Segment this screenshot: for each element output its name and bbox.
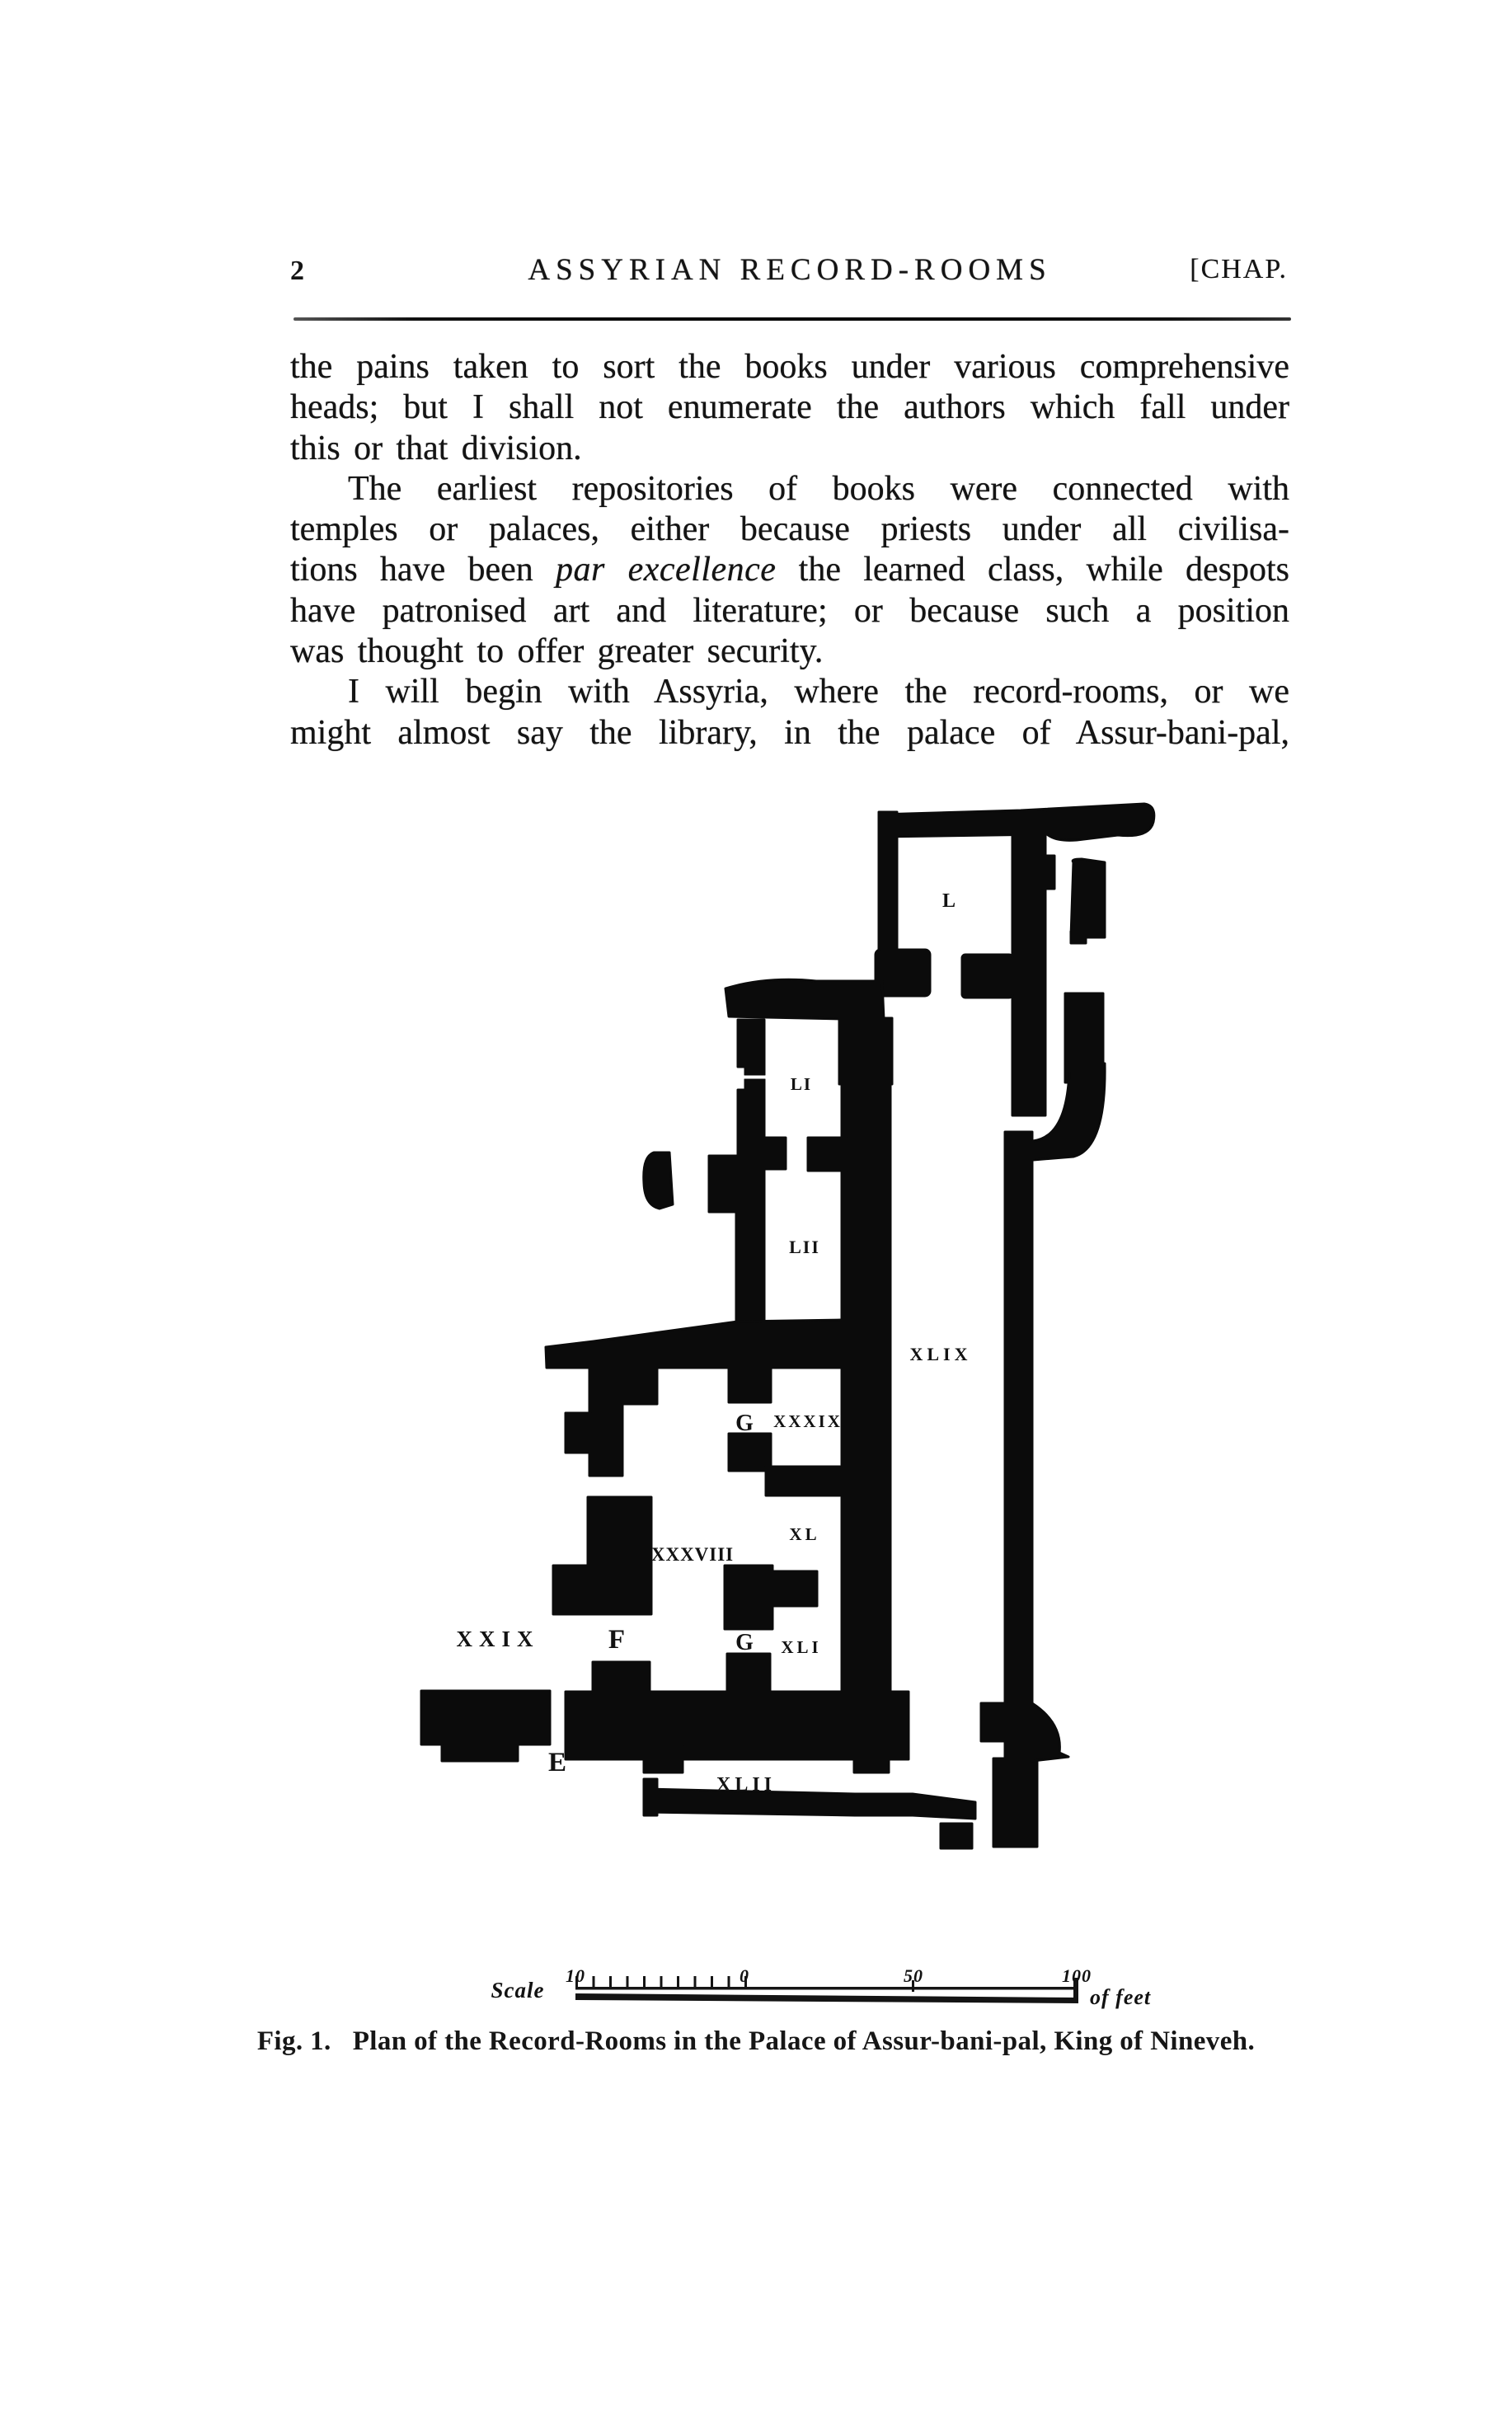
scale-tick <box>711 1976 713 1989</box>
book-page: 2 ASSYRIAN RECORD-ROOMS [CHAP. the pains… <box>0 0 1512 2418</box>
scale-tick <box>643 1976 646 1989</box>
room-label: G <box>735 1630 754 1655</box>
scale-tick <box>677 1976 679 1989</box>
scale-tick <box>728 1976 730 1989</box>
scale-tick <box>593 1976 595 1989</box>
room-label: E <box>548 1748 566 1777</box>
room-label: L <box>942 890 956 912</box>
figure-number: Fig. 1. <box>257 2026 331 2056</box>
room-label: F <box>608 1625 625 1655</box>
room-label: LII <box>789 1237 820 1257</box>
figure-caption: Fig. 1.Plan of the Record-Rooms in the P… <box>0 2026 1512 2057</box>
figure-caption-text: Plan of the Record-Rooms in the Palace o… <box>353 2026 1255 2056</box>
room-label: XLIX <box>909 1344 971 1364</box>
room-label: XXIX <box>456 1627 539 1651</box>
room-label: LI <box>791 1074 812 1094</box>
plan-walls <box>421 804 1154 1848</box>
scale-bar <box>575 1976 1078 2003</box>
scale-word: Scale <box>491 1978 545 2002</box>
scale-tick <box>609 1976 612 1989</box>
room-label: G <box>735 1411 754 1436</box>
scale-mark: 100 <box>1062 1965 1092 1986</box>
room-label: XLII <box>716 1774 776 1796</box>
room-label: XXXIX <box>773 1411 843 1431</box>
scale-tick <box>660 1976 663 1989</box>
scale-tick <box>694 1976 697 1989</box>
scale-tick <box>627 1976 629 1989</box>
scale-mark: 0 <box>740 1965 749 1986</box>
scale-mark: 50 <box>904 1965 923 1986</box>
scale-mark: 10 <box>566 1965 585 1986</box>
room-label: XL <box>789 1524 819 1544</box>
room-label: XLI <box>781 1637 821 1657</box>
room-label: XXXVIII <box>651 1544 734 1565</box>
scale-unit: of feet <box>1090 1985 1151 2009</box>
